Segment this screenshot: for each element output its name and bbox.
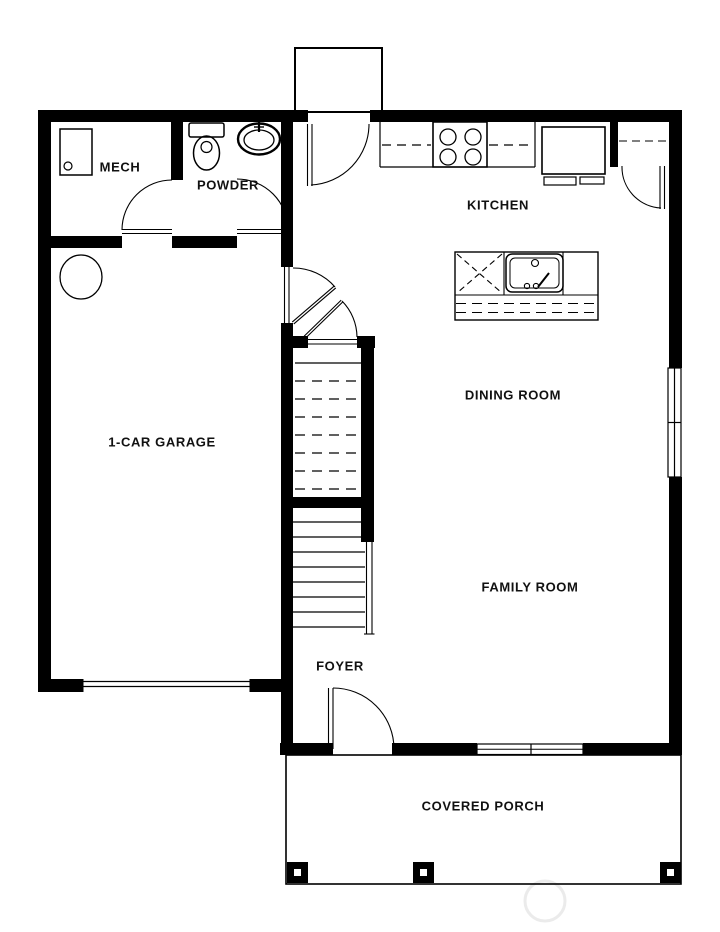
room-label-garage: 1-CAR GARAGE [108, 435, 216, 450]
dining-windows [668, 368, 681, 477]
dishwasher [457, 254, 502, 293]
covered-porch-outline [286, 755, 681, 884]
range-stove [433, 122, 487, 167]
pantry-door [619, 141, 667, 209]
floor-plan: MECH POWDER KITCHEN DINING ROOM 1-CAR GA… [0, 0, 720, 932]
side-entry-door [308, 124, 370, 186]
kitchen-island [455, 252, 598, 320]
refrigerator [542, 127, 605, 185]
family-room-window [477, 744, 583, 755]
powder-sink [238, 122, 280, 155]
kitchen-sink [506, 254, 563, 292]
room-label-dining: DINING ROOM [465, 388, 561, 403]
stairs-lower-flight [293, 522, 365, 627]
garage-floor-drain [60, 255, 102, 299]
watermark [525, 881, 565, 921]
room-label-powder: POWDER [197, 178, 259, 193]
floor-plan-drawing [0, 0, 720, 932]
mech-door [122, 180, 172, 234]
front-door [329, 688, 395, 749]
room-label-porch: COVERED PORCH [422, 799, 545, 814]
garage-entry-door [285, 267, 336, 324]
room-label-kitchen: KITCHEN [467, 198, 529, 213]
water-heater [60, 129, 92, 175]
room-label-mech: MECH [100, 160, 141, 175]
room-label-foyer: FOYER [316, 659, 364, 674]
toilet [189, 123, 224, 170]
porch-posts [287, 862, 681, 883]
stair-railing [364, 541, 375, 634]
entry-landing-bumpout [295, 48, 382, 112]
stair-door [304, 300, 357, 344]
kitchen-counter [380, 122, 535, 167]
garage-door [83, 679, 250, 692]
stairs-upper-flight [295, 363, 361, 489]
room-label-family: FAMILY ROOM [482, 580, 579, 595]
